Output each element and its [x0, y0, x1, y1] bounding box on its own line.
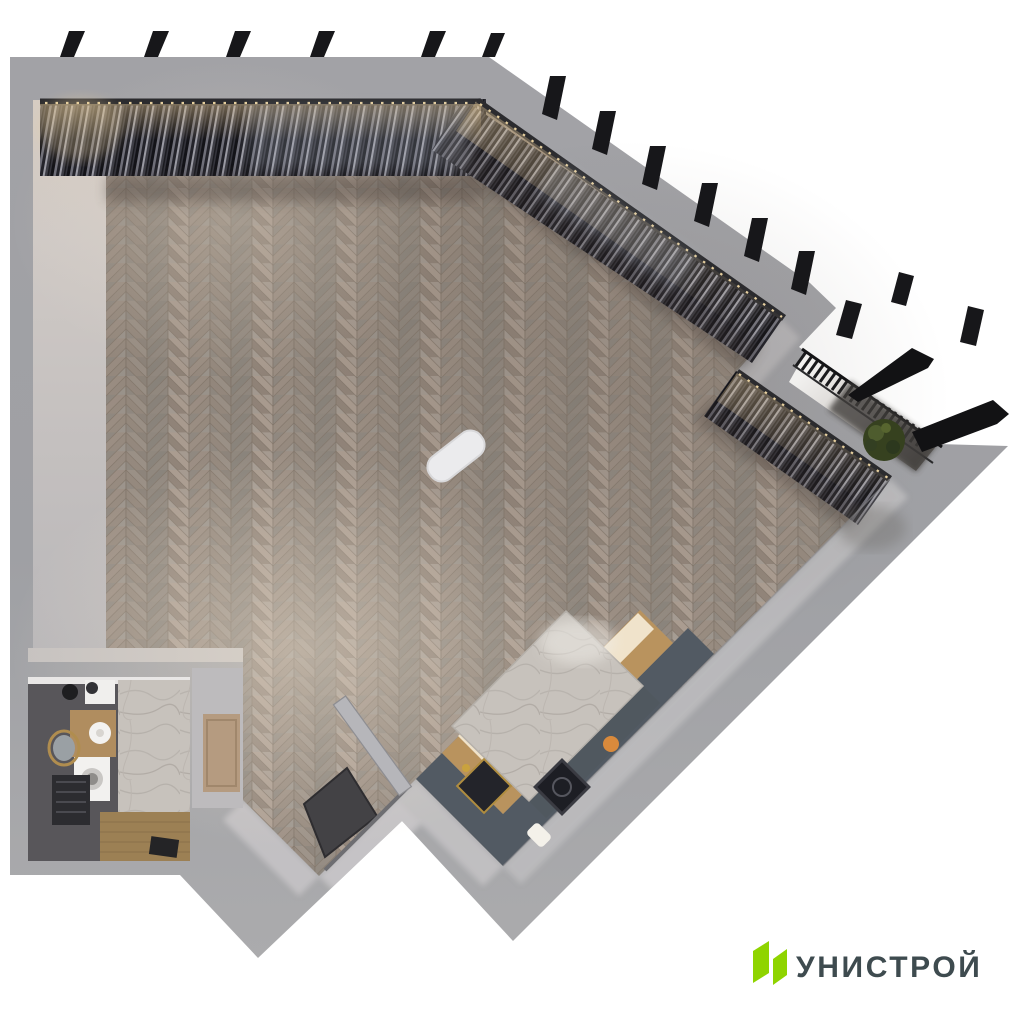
svg-text:УНИСТРОЙ: УНИСТРОЙ — [796, 950, 982, 984]
